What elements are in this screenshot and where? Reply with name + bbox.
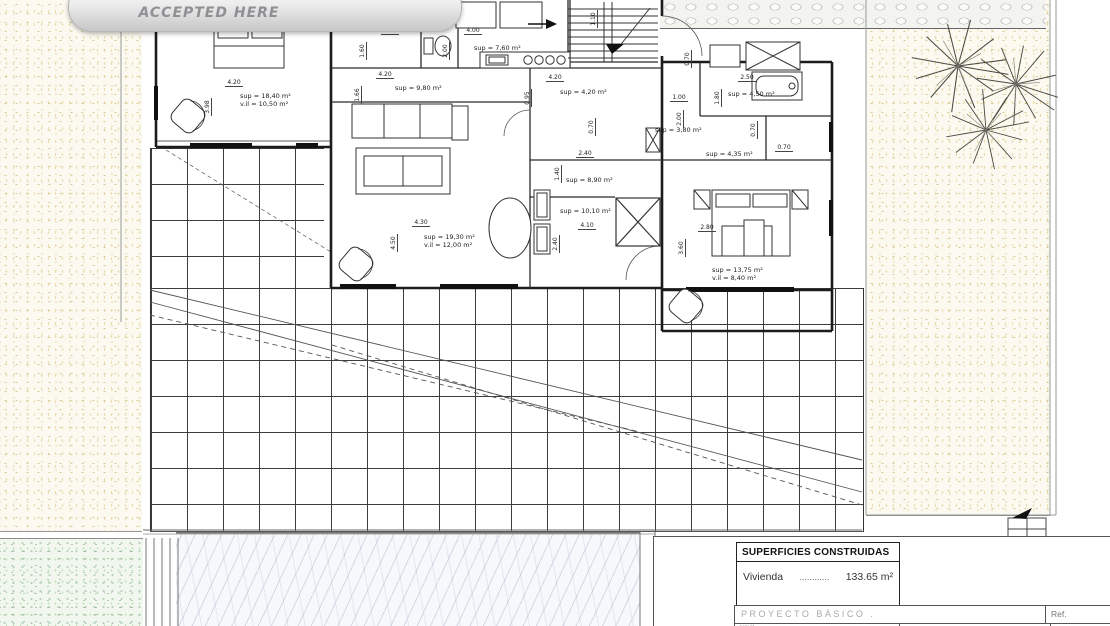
kitchen-counter-icon	[456, 2, 570, 68]
dimension-label-6: 4.00	[464, 27, 482, 35]
chaise-icon-1	[168, 95, 210, 137]
leader-dots: ............	[783, 572, 846, 582]
dimension-label-12: 1.10	[590, 10, 598, 28]
dimension-label-8: 4.20	[376, 71, 394, 79]
dimension-label-18: 0.70	[588, 118, 596, 136]
title-sheet: SUPERFICIES CONSTRUIDAS Vivienda .......…	[653, 536, 1110, 626]
superficies-box: SUPERFICIES CONSTRUIDAS Vivienda .......…	[736, 542, 900, 606]
bathtub-icon	[752, 72, 802, 100]
sand-garden-right	[866, 0, 1050, 516]
dimension-label-16: 2.50	[738, 74, 756, 82]
vivienda-area-value: 133.65 m²	[846, 571, 893, 583]
tiled-terrace-main	[150, 288, 864, 532]
dimension-label-26: 4.50	[390, 234, 398, 252]
toilet-icon	[424, 36, 451, 56]
water-heater-icon	[646, 128, 660, 152]
project-title: PROYECTO BÁSICO .	[735, 606, 1046, 623]
dimension-label-22: 1.40	[554, 165, 562, 183]
room-label-bedroom-right: sup = 13,75 m²v.il = 8,40 m²	[712, 266, 763, 282]
dimension-label-13: 0.70	[684, 50, 692, 68]
stone-path	[660, 0, 1046, 29]
dimension-label-14: 1.00	[670, 94, 688, 102]
dimension-label-5: 1.60	[359, 42, 367, 60]
dimension-label-10: 4.20	[546, 74, 564, 82]
dimension-label-24: 2.40	[552, 235, 560, 253]
dimension-label-23: 4.10	[578, 222, 596, 230]
dimension-label-19: 0.70	[750, 121, 758, 139]
ref-label: Ref.	[1046, 606, 1110, 623]
skylight-icon-right	[710, 42, 800, 70]
interior-stairs-icon	[568, 2, 658, 62]
door-swing-arcs	[504, 16, 702, 280]
entry-arrow-icon	[528, 19, 557, 29]
swimming-pool	[176, 532, 640, 626]
room-label-living-room: sup = 19,30 m²v.il = 12,00 m²	[424, 233, 475, 249]
accepted-here-label: ACCEPTED HERE	[109, 5, 309, 21]
dimension-label-2: 4.20	[225, 79, 243, 87]
skylight-icon-hall	[616, 198, 660, 246]
room-label-kitchen: sup = 7,60 m²	[474, 44, 521, 52]
dimension-label-21: 2.40	[576, 150, 594, 158]
dimension-label-15: 2.00	[676, 110, 684, 128]
room-label-bathroom-2: sup = 4,35 m²	[706, 150, 753, 158]
grass-area	[0, 538, 143, 626]
dimension-label-11: 0.95	[524, 89, 532, 107]
dimension-label-9: 1.66	[354, 86, 362, 104]
tiled-terrace-upper	[150, 148, 324, 288]
dimension-label-20: 0.70	[775, 144, 793, 152]
room-label-bedroom-left: sup = 18,40 m²v.il = 10,50 m²	[240, 92, 291, 108]
room-label-dressing: sup = 9,80 m²	[395, 84, 442, 92]
dimension-label-28: 3.60	[678, 239, 686, 257]
dining-table-icon	[489, 198, 531, 258]
sand-garden-left	[0, 0, 142, 532]
sideboard-icon	[534, 190, 550, 254]
dimension-label-3: 3.98	[204, 98, 212, 116]
room-label-bathroom: sup = 4,50 m²	[728, 90, 775, 98]
room-label-storage: sup = 3,80 m²	[655, 126, 702, 134]
sofa-icons	[352, 104, 468, 194]
accepted-here-badge: ACCEPTED HERE	[68, 0, 462, 32]
dimension-label-27: 2.80	[698, 224, 716, 232]
room-label-corridor: sup = 4,20 m²	[560, 88, 607, 96]
dimension-label-17: 1.80	[714, 89, 722, 107]
room-label-laundry: sup = 8,90 m²	[566, 176, 613, 184]
superficies-row: Vivienda ............ 133.65 m²	[737, 562, 899, 583]
bed-right-icon	[694, 190, 808, 256]
pool-steps-icon	[146, 538, 178, 626]
dimension-label-25: 4.30	[412, 219, 430, 227]
chaise-icon-2	[336, 243, 378, 285]
superficies-header: SUPERFICIES CONSTRUIDAS	[737, 543, 899, 562]
project-row: PROYECTO BÁSICO . Ref.	[734, 605, 1110, 624]
dimension-label-7: 2.00	[442, 42, 450, 60]
floor-plan-canvas: sup = 18,40 m²v.il = 10,50 m²sup = 9,80 …	[0, 0, 1110, 626]
room-label-hall: sup = 10,10 m²	[560, 207, 611, 215]
vivienda-label: Vivienda	[743, 571, 783, 583]
